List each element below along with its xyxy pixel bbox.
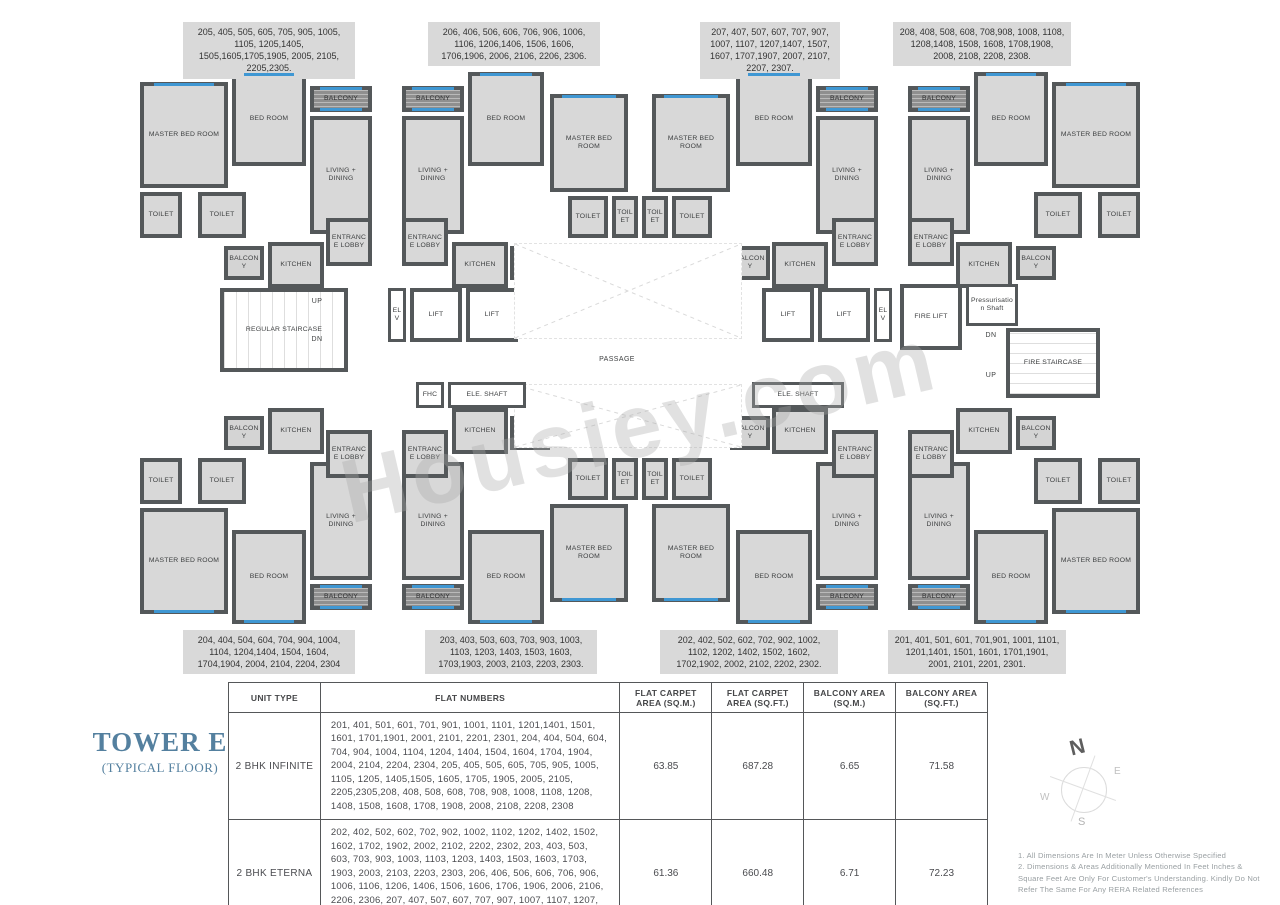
room-label: BED ROOM: [991, 572, 1032, 582]
window-line: [244, 620, 294, 623]
room-label: BALCONY: [1020, 424, 1052, 443]
window-line: [826, 606, 867, 609]
window-line: [748, 73, 800, 76]
header-carpet-sqft: FLAT CARPET AREA (SQ.FT.): [712, 683, 804, 713]
room-bed-room: BED ROOM: [468, 72, 544, 166]
room-label: MASTER BED ROOM: [554, 544, 624, 563]
window-line: [412, 87, 453, 90]
carpet-sqm-cell: 63.85: [620, 713, 712, 820]
room-toilet: TOILET: [140, 458, 182, 504]
room-label: FHC: [422, 390, 439, 400]
room-entrance-lobby: ENTRANCE LOBBY: [402, 430, 448, 478]
tower-title: TOWER E: [84, 727, 236, 758]
room-elv: ELV: [388, 288, 406, 342]
unit-area-table: UNIT TYPE FLAT NUMBERS FLAT CARPET AREA …: [228, 682, 988, 905]
room-label: LIFT: [484, 310, 501, 320]
room-toilet: TOILET: [1034, 192, 1082, 238]
window-line: [320, 585, 361, 588]
room-label: LIFT: [428, 310, 445, 320]
window-line: [986, 620, 1036, 623]
room-label: ELV: [391, 306, 403, 325]
room-label: KITCHEN: [279, 426, 312, 436]
room-balcony: BALCONY: [224, 416, 264, 450]
flat-label-top-3: 207, 407, 507, 607, 707, 907, 1007, 1107…: [700, 22, 840, 79]
room-label: MASTER BED ROOM: [554, 134, 624, 153]
room-label: TOILET: [616, 470, 634, 489]
room-toilet: TOILET: [642, 196, 668, 238]
window-line: [480, 620, 532, 623]
room-kitchen: KITCHEN: [956, 242, 1012, 288]
room-balcony: BALCONY: [908, 584, 970, 610]
room-master-bed-room: MASTER BED ROOM: [550, 94, 628, 192]
room-entrance-lobby: ENTRANCE LOBBY: [326, 430, 372, 478]
room-label: ENTRANCE LOBBY: [836, 445, 874, 464]
room-toilet: TOILET: [612, 196, 638, 238]
flat-label-bottom-1: 204, 404, 504, 604, 704, 904, 1004, 1104…: [183, 630, 355, 674]
room-label: TOILET: [1106, 476, 1133, 486]
room-label: MASTER BED ROOM: [656, 544, 726, 563]
room-living-dining: LIVING + DINING: [402, 116, 464, 234]
room-toilet: TOILET: [140, 192, 182, 238]
room-label: MASTER BED ROOM: [656, 134, 726, 153]
header-unit-type: UNIT TYPE: [229, 683, 321, 713]
room-label: MASTER BED ROOM: [1060, 130, 1132, 140]
room-label: BALCONY: [829, 592, 865, 602]
flat-label-top-4: 208, 408, 508, 608, 708,908, 1008, 1108,…: [893, 22, 1071, 66]
room-entrance-lobby: ENTRANCE LOBBY: [832, 430, 878, 478]
room-label: ELE. SHAFT: [777, 390, 820, 400]
header-balcony-sqft: BALCONY AREA (SQ.FT.): [896, 683, 988, 713]
flat-label-top-1: 205, 405, 505, 605, 705, 905, 1005, 1105…: [183, 22, 355, 79]
room-master-bed-room: MASTER BED ROOM: [652, 94, 730, 192]
window-line: [918, 108, 959, 111]
window-line: [412, 585, 453, 588]
room-kitchen: KITCHEN: [268, 242, 324, 288]
room-label: FIRE STAIRCASE: [1023, 358, 1083, 368]
room-label: TOILET: [209, 476, 236, 486]
room-master-bed-room: MASTER BED ROOM: [1052, 82, 1140, 188]
header-balcony-sqm: BALCONY AREA (SQ.M.): [804, 683, 896, 713]
room-kitchen: KITCHEN: [268, 408, 324, 454]
room-lift: LIFT: [818, 288, 870, 342]
window-line: [154, 83, 215, 86]
room-label: TOILET: [148, 210, 175, 220]
room-label: LIFT: [836, 310, 853, 320]
carpet-sqft-cell: 687.28: [712, 713, 804, 820]
table-header-row: UNIT TYPE FLAT NUMBERS FLAT CARPET AREA …: [229, 683, 988, 713]
window-line: [986, 73, 1036, 76]
room-entrance-lobby: ENTRANCE LOBBY: [908, 430, 954, 478]
room-label: KITCHEN: [967, 260, 1000, 270]
room-label: BALCONY: [829, 94, 865, 104]
room-label: TOILET: [1106, 210, 1133, 220]
room-label: ELV: [877, 306, 889, 325]
balcony-sqm-cell: 6.65: [804, 713, 896, 820]
room-balcony: BALCONY: [310, 86, 372, 112]
room-entrance-lobby: ENTRANCE LOBBY: [326, 218, 372, 266]
room-label: BALCONY: [228, 424, 260, 443]
window-line: [244, 73, 294, 76]
room-label: BED ROOM: [486, 572, 527, 582]
room-fire-lift: FIRE LIFT: [900, 284, 962, 350]
balcony-sqm-cell: 6.71: [804, 820, 896, 905]
compass-circle: [1061, 767, 1107, 813]
compass-south: S: [1078, 816, 1085, 828]
room-toilet: TOILET: [642, 458, 668, 500]
room-balcony: BALCONY: [908, 86, 970, 112]
room-bed-room: BED ROOM: [736, 72, 812, 166]
plan-text-dn: DN: [300, 336, 334, 343]
room-label: KITCHEN: [967, 426, 1000, 436]
room-label: BALCONY: [415, 592, 451, 602]
room-elv: ELV: [874, 288, 892, 342]
room-label: BALCONY: [415, 94, 451, 104]
room-bed-room: BED ROOM: [232, 530, 306, 624]
room-kitchen: KITCHEN: [452, 242, 508, 288]
room-label: ENTRANCE LOBBY: [330, 233, 368, 252]
window-line: [826, 87, 867, 90]
floor-plan-page: Housiey.com MASTER BED ROOMMASTER BED RO…: [0, 0, 1280, 905]
room-label: TOILET: [646, 470, 664, 489]
header-carpet-sqm: FLAT CARPET AREA (SQ.M.): [620, 683, 712, 713]
room-kitchen: KITCHEN: [772, 242, 828, 288]
room-ele-shaft: ELE. SHAFT: [448, 382, 526, 408]
room-balcony: BALCONY: [816, 86, 878, 112]
void-area: [514, 243, 742, 339]
room-label: REGULAR STAIRCASE: [245, 325, 323, 335]
room-pressurisation-shaft: Pressurisation Shaft: [966, 284, 1018, 326]
room-entrance-lobby: ENTRANCE LOBBY: [908, 218, 954, 266]
room-lift: LIFT: [410, 288, 462, 342]
room-master-bed-room: MASTER BED ROOM: [140, 82, 228, 188]
room-label: TOILET: [616, 208, 634, 227]
room-fire-staircase: FIRE STAIRCASE: [1006, 328, 1100, 398]
room-label: KITCHEN: [279, 260, 312, 270]
room-label: TOILET: [1045, 476, 1072, 486]
disclaimer-notes: 1. All Dimensions Are In Meter Unless Ot…: [1018, 850, 1268, 896]
note-line: 1. All Dimensions Are In Meter Unless Ot…: [1018, 850, 1268, 861]
window-line: [412, 606, 453, 609]
unit-type-cell: 2 BHK ETERNA: [229, 820, 321, 905]
room-living-dining: LIVING + DINING: [908, 462, 970, 580]
room-label: LIVING + DINING: [314, 512, 368, 531]
header-flat-numbers: FLAT NUMBERS: [320, 683, 620, 713]
room-balcony: BALCONY: [1016, 246, 1056, 280]
window-line: [412, 108, 453, 111]
room-label: TOILET: [148, 476, 175, 486]
room-toilet: TOILET: [672, 196, 712, 238]
room-label: MASTER BED ROOM: [1060, 556, 1132, 566]
note-line: 2. Dimensions & Areas Additionally Menti…: [1018, 861, 1268, 895]
room-bed-room: BED ROOM: [974, 530, 1048, 624]
window-line: [748, 620, 800, 623]
room-label: MASTER BED ROOM: [148, 556, 220, 566]
window-line: [664, 95, 717, 98]
carpet-sqm-cell: 61.36: [620, 820, 712, 905]
room-label: ENTRANCE LOBBY: [406, 445, 444, 464]
room-label: KITCHEN: [463, 426, 496, 436]
compass-north: N: [1067, 735, 1088, 762]
room-label: TOILET: [575, 212, 602, 222]
room-label: KITCHEN: [783, 260, 816, 270]
room-bed-room: BED ROOM: [232, 72, 306, 166]
window-line: [1066, 610, 1127, 613]
room-lift: LIFT: [466, 288, 518, 342]
room-label: TOILET: [679, 212, 706, 222]
room-label: BED ROOM: [249, 572, 290, 582]
room-toilet: TOILET: [1034, 458, 1082, 504]
room-bed-room: BED ROOM: [974, 72, 1048, 166]
void-area: [514, 384, 742, 448]
room-kitchen: KITCHEN: [956, 408, 1012, 454]
room-label: BALCONY: [1020, 254, 1052, 273]
flat-numbers-cell: 201, 401, 501, 601, 701, 901, 1001, 1101…: [320, 713, 620, 820]
room-label: BALCONY: [228, 254, 260, 273]
plan-text-up: UP: [974, 372, 1008, 379]
compass-east: E: [1114, 766, 1121, 777]
table-row: 2 BHK ETERNA 202, 402, 502, 602, 702, 90…: [229, 820, 988, 905]
flat-label-bottom-4: 201, 401, 501, 601, 701,901, 1001, 1101,…: [888, 630, 1066, 674]
room-label: TOILET: [575, 474, 602, 484]
room-lift: LIFT: [762, 288, 814, 342]
room-entrance-lobby: ENTRANCE LOBBY: [832, 218, 878, 266]
room-label: BALCONY: [921, 94, 957, 104]
room-living-dining: LIVING + DINING: [310, 116, 372, 234]
window-line: [320, 87, 361, 90]
floor-plan-canvas: Housiey.com MASTER BED ROOMMASTER BED RO…: [140, 70, 1140, 626]
carpet-sqft-cell: 660.48: [712, 820, 804, 905]
room-label: TOILET: [209, 210, 236, 220]
window-line: [562, 95, 615, 98]
window-line: [918, 585, 959, 588]
room-label: KITCHEN: [783, 426, 816, 436]
flat-label-bottom-3: 202, 402, 502, 602, 702, 902, 1002, 1102…: [660, 630, 838, 674]
room-toilet: TOILET: [1098, 458, 1140, 504]
window-line: [826, 585, 867, 588]
room-toilet: TOILET: [198, 192, 246, 238]
room-balcony: BALCONY: [816, 584, 878, 610]
room-toilet: TOILET: [672, 458, 712, 500]
table-row: 2 BHK INFINITE 201, 401, 501, 601, 701, …: [229, 713, 988, 820]
room-balcony: BALCONY: [224, 246, 264, 280]
room-toilet: TOILET: [612, 458, 638, 500]
room-living-dining: LIVING + DINING: [816, 116, 878, 234]
room-label: ENTRANCE LOBBY: [330, 445, 368, 464]
room-label: BED ROOM: [754, 114, 795, 124]
room-label: BED ROOM: [249, 114, 290, 124]
room-label: BED ROOM: [991, 114, 1032, 124]
compass-west: W: [1040, 792, 1049, 803]
balcony-sqft-cell: 72.23: [896, 820, 988, 905]
room-label: LIVING + DINING: [314, 166, 368, 185]
room-fhc: FHC: [416, 382, 444, 408]
room-label: BALCONY: [323, 592, 359, 602]
room-label: TOILET: [646, 208, 664, 227]
room-label: Pressurisation Shaft: [969, 296, 1015, 315]
room-toilet: TOILET: [198, 458, 246, 504]
room-label: LIVING + DINING: [912, 166, 966, 185]
room-bed-room: BED ROOM: [468, 530, 544, 624]
room-kitchen: KITCHEN: [772, 408, 828, 454]
room-balcony: BALCONY: [310, 584, 372, 610]
room-label: ELE. SHAFT: [466, 390, 509, 400]
flat-label-bottom-2: 203, 403, 503, 603, 703, 903, 1003, 1103…: [425, 630, 597, 674]
room-entrance-lobby: ENTRANCE LOBBY: [402, 218, 448, 266]
balcony-sqft-cell: 71.58: [896, 713, 988, 820]
window-line: [154, 610, 215, 613]
tower-subtitle: (TYPICAL FLOOR): [84, 760, 236, 776]
room-master-bed-room: MASTER BED ROOM: [1052, 508, 1140, 614]
room-kitchen: KITCHEN: [452, 408, 508, 454]
window-line: [480, 73, 532, 76]
room-label: ENTRANCE LOBBY: [836, 233, 874, 252]
room-balcony: BALCONY: [402, 86, 464, 112]
room-label: TOILET: [679, 474, 706, 484]
room-label: ENTRANCE LOBBY: [912, 445, 950, 464]
room-label: LIVING + DINING: [820, 512, 874, 531]
tower-title-block: TOWER E (TYPICAL FLOOR): [84, 727, 236, 776]
room-master-bed-room: MASTER BED ROOM: [652, 504, 730, 602]
window-line: [664, 598, 717, 601]
plan-text-dn: DN: [974, 332, 1008, 339]
room-bed-room: BED ROOM: [736, 530, 812, 624]
room-balcony: BALCONY: [1016, 416, 1056, 450]
room-toilet: TOILET: [1098, 192, 1140, 238]
window-line: [918, 87, 959, 90]
unit-type-cell: 2 BHK INFINITE: [229, 713, 321, 820]
window-line: [320, 108, 361, 111]
room-label: KITCHEN: [463, 260, 496, 270]
room-living-dining: LIVING + DINING: [816, 462, 878, 580]
window-line: [918, 606, 959, 609]
room-label: BED ROOM: [754, 572, 795, 582]
room-label: LIVING + DINING: [406, 166, 460, 185]
window-line: [826, 108, 867, 111]
room-label: ENTRANCE LOBBY: [912, 233, 950, 252]
room-label: TOILET: [1045, 210, 1072, 220]
room-label: FIRE LIFT: [913, 312, 948, 322]
room-master-bed-room: MASTER BED ROOM: [550, 504, 628, 602]
room-label: LIVING + DINING: [912, 512, 966, 531]
room-toilet: TOILET: [568, 196, 608, 238]
room-master-bed-room: MASTER BED ROOM: [140, 508, 228, 614]
plan-text-passage: PASSAGE: [577, 356, 657, 363]
room-label: BED ROOM: [486, 114, 527, 124]
room-label: BALCONY: [323, 94, 359, 104]
room-label: ENTRANCE LOBBY: [406, 233, 444, 252]
room-balcony: BALCONY: [402, 584, 464, 610]
window-line: [1066, 83, 1127, 86]
flat-label-top-2: 206, 406, 506, 606, 706, 906, 1006, 1106…: [428, 22, 600, 66]
room-living-dining: LIVING + DINING: [402, 462, 464, 580]
room-label: LIVING + DINING: [820, 166, 874, 185]
room-living-dining: LIVING + DINING: [310, 462, 372, 580]
room-label: MASTER BED ROOM: [148, 130, 220, 140]
room-ele-shaft: ELE. SHAFT: [752, 382, 844, 408]
window-line: [562, 598, 615, 601]
plan-text-up: UP: [300, 298, 334, 305]
room-label: LIFT: [780, 310, 797, 320]
room-toilet: TOILET: [568, 458, 608, 500]
room-living-dining: LIVING + DINING: [908, 116, 970, 234]
room-label: BALCONY: [921, 592, 957, 602]
compass-rose-icon: N E W S: [1040, 740, 1126, 826]
window-line: [320, 606, 361, 609]
room-label: LIVING + DINING: [406, 512, 460, 531]
flat-numbers-cell: 202, 402, 502, 602, 702, 902, 1002, 1102…: [320, 820, 620, 905]
